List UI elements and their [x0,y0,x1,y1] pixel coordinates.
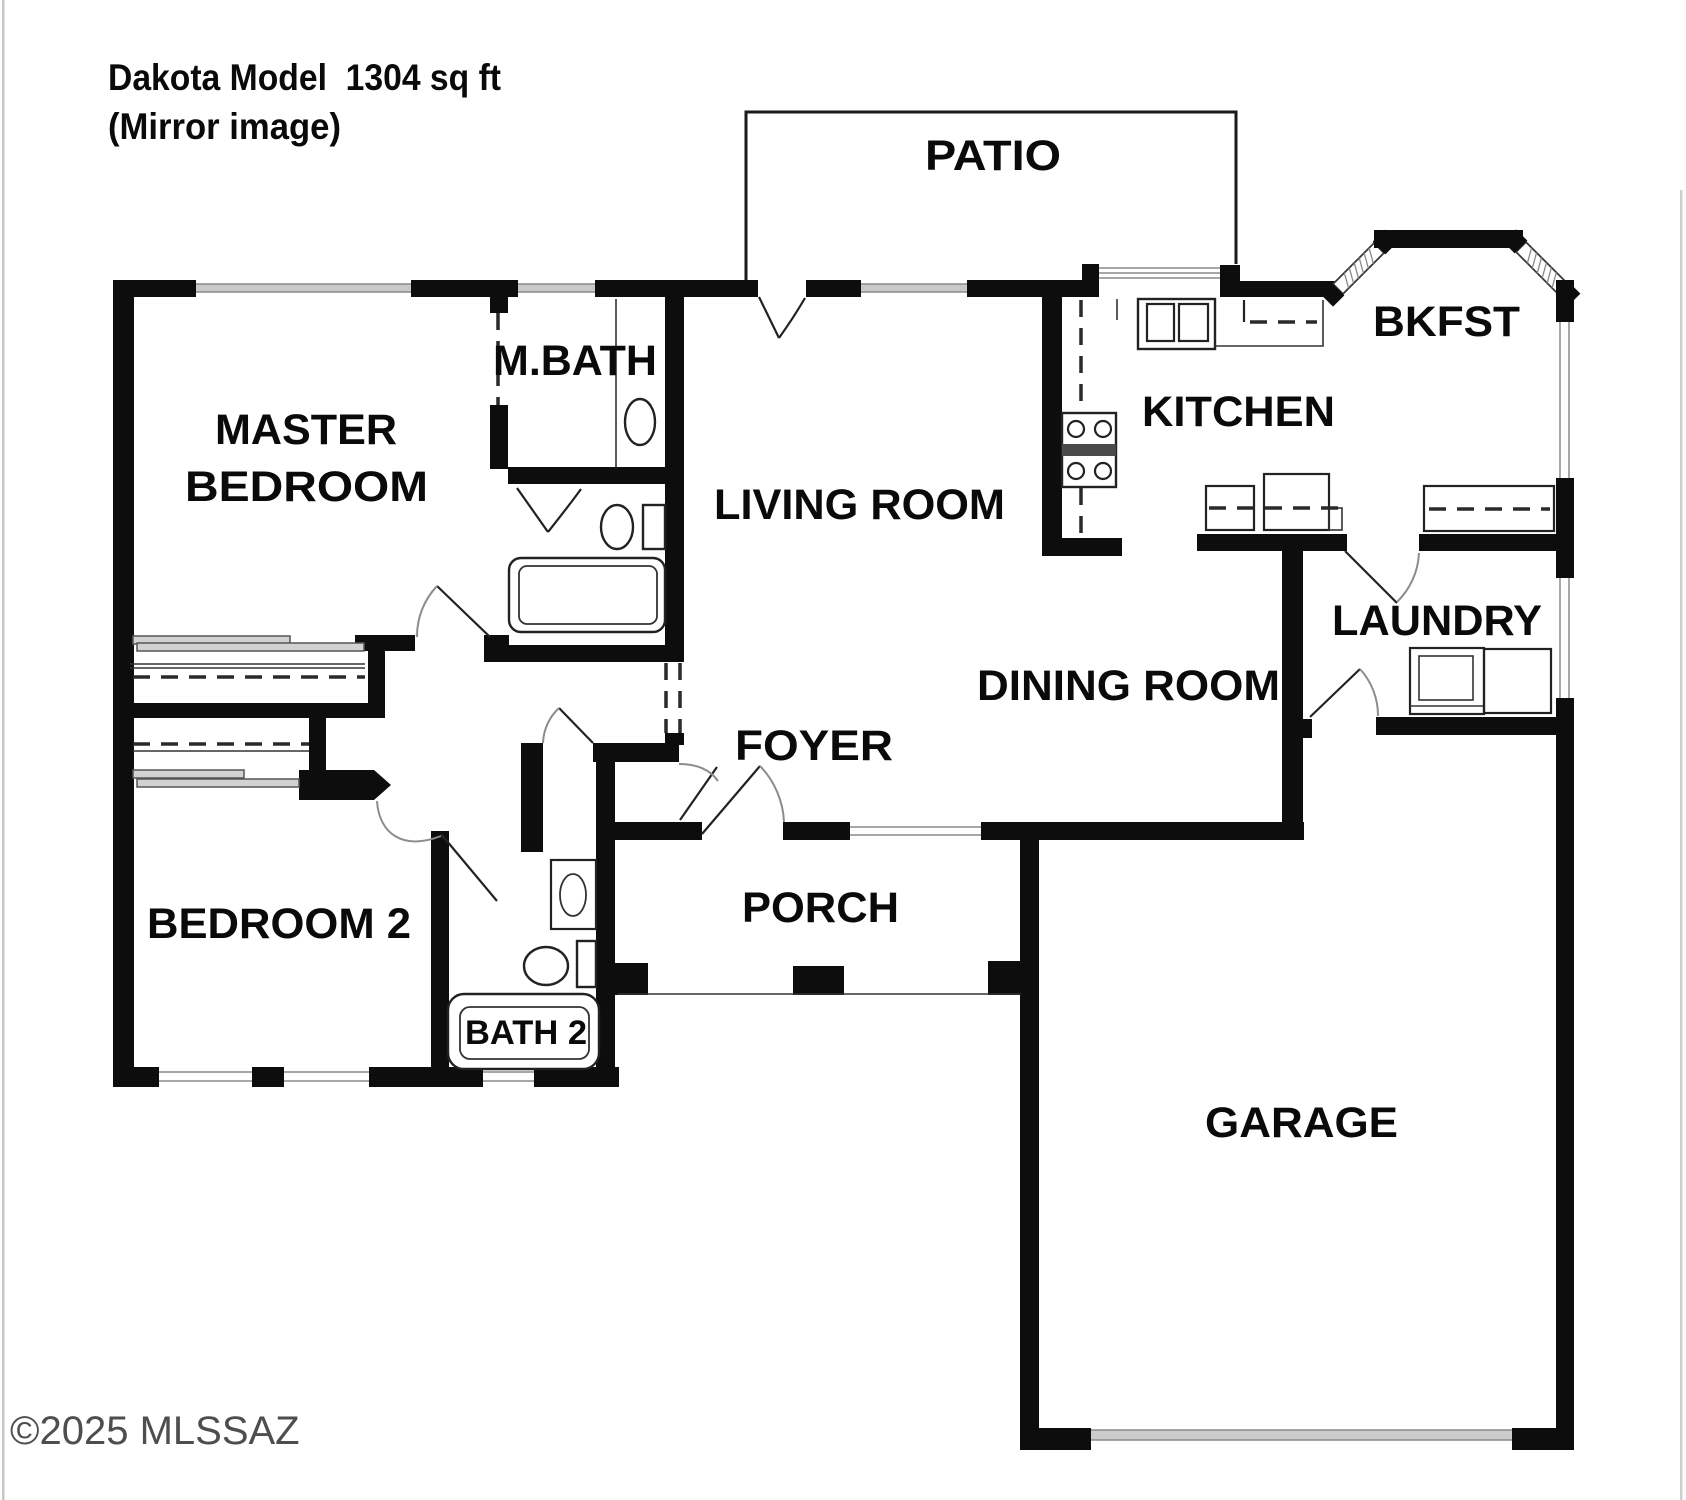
svg-text:(Mirror image): (Mirror image) [108,106,341,147]
svg-text:PATIO: PATIO [925,132,1061,180]
svg-text:LIVING ROOM: LIVING ROOM [714,481,1005,529]
svg-text:KITCHEN: KITCHEN [1142,388,1335,436]
svg-text:GARAGE: GARAGE [1205,1099,1398,1147]
svg-text:BEDROOM 2: BEDROOM 2 [147,900,411,948]
svg-text:LAUNDRY: LAUNDRY [1332,597,1542,645]
svg-text:©2025 MLSSAZ: ©2025 MLSSAZ [10,1409,300,1453]
svg-text:DINING ROOM: DINING ROOM [977,662,1280,710]
svg-text:PORCH: PORCH [742,884,899,932]
svg-text:FOYER: FOYER [735,722,893,770]
svg-text:MASTER: MASTER [215,406,397,454]
svg-text:M.BATH: M.BATH [493,337,657,385]
svg-text:BKFST: BKFST [1373,298,1520,346]
svg-text:BEDROOM: BEDROOM [185,463,428,511]
svg-text:Dakota Model 1304 sq ft: Dakota Model 1304 sq ft [108,57,501,98]
svg-text:BATH 2: BATH 2 [465,1014,587,1052]
